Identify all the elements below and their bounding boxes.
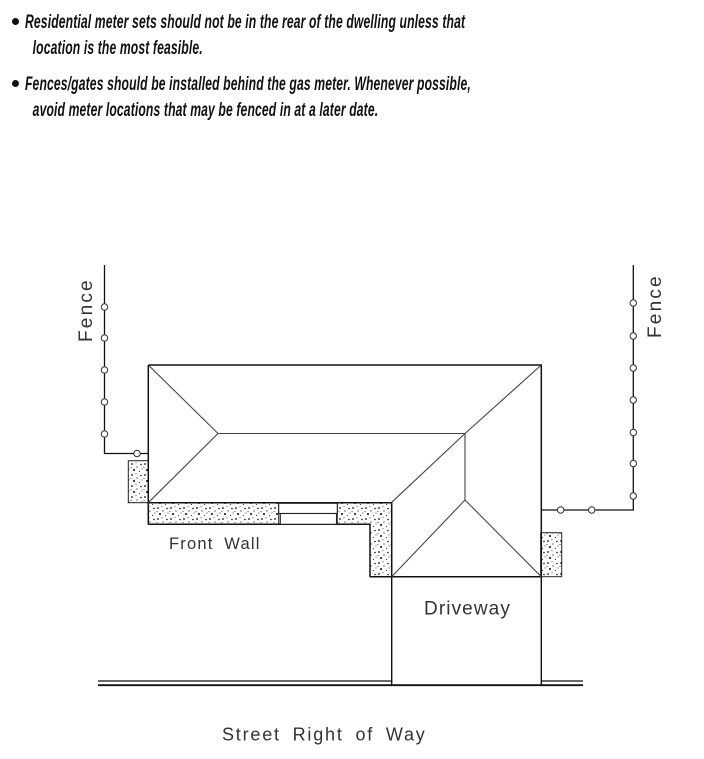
fence-left-label: Fence: [76, 278, 97, 342]
front-wall-band-left: [148, 503, 278, 525]
meter-block-right: [541, 533, 562, 577]
garage-hips: [392, 500, 542, 577]
main-ridge-and-hips: [148, 365, 541, 434]
front-window: [279, 503, 338, 524]
street-lines: [98, 681, 583, 685]
fence-post-markers: [101, 304, 140, 457]
site-plan-diagram: Fence Fence: [0, 0, 704, 759]
front-wall-label: Front Wall: [169, 535, 261, 553]
fence-right: Fence: [541, 265, 666, 513]
front-wall-band-right: [337, 503, 391, 577]
fence-post-markers: [558, 300, 637, 513]
street-right-of-way-label: Street Right of Way: [222, 725, 427, 745]
manual-page: Residential meter sets should not be in …: [0, 0, 704, 759]
stippled-walls: [128, 461, 561, 577]
driveway-edges: [392, 577, 542, 685]
meter-block-left: [128, 461, 148, 503]
driveway-label: Driveway: [424, 599, 511, 620]
fence-right-label: Fence: [645, 274, 666, 338]
valley-line: [392, 434, 465, 503]
fence-left: Fence: [76, 265, 148, 457]
hip-bottom-left: [148, 434, 218, 503]
